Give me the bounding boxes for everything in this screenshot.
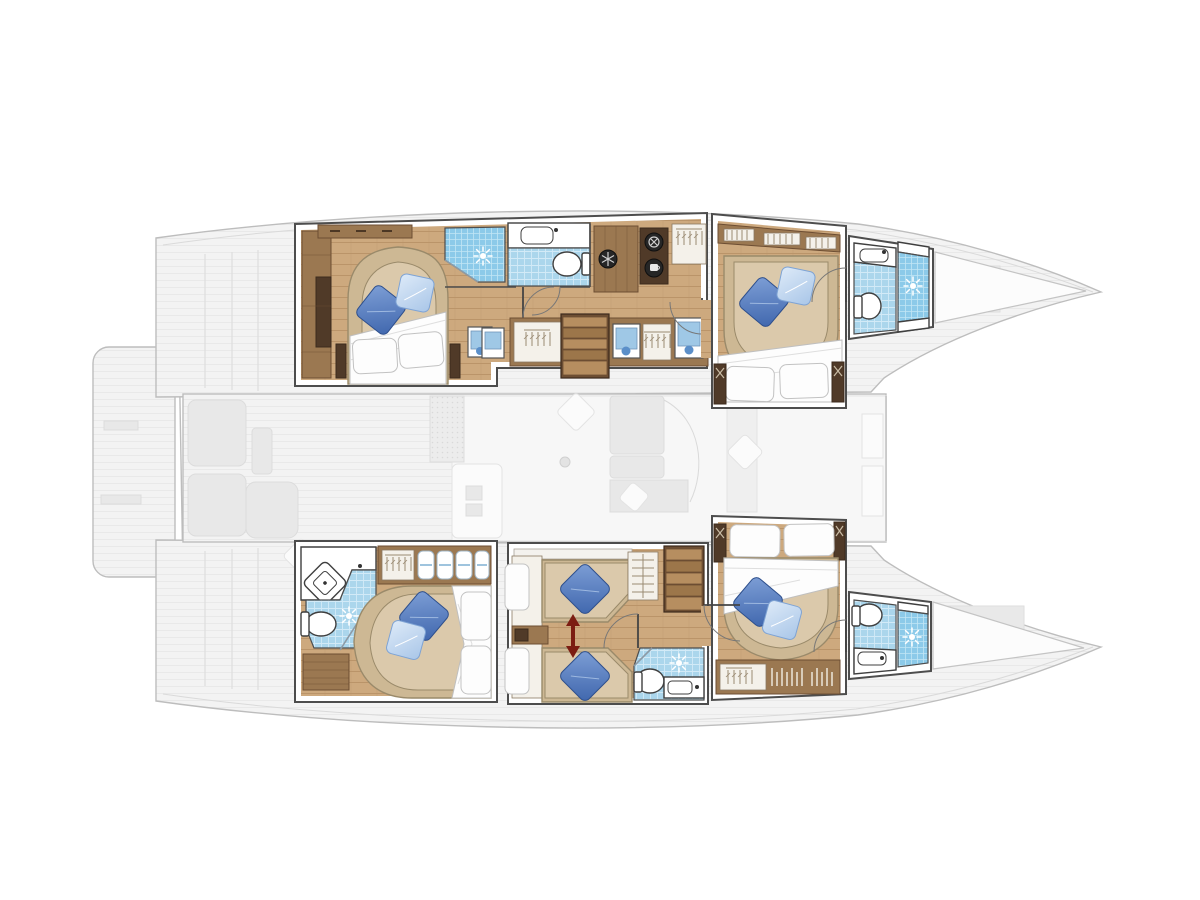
wardrobe [716,660,840,694]
sun-drain-icon [340,607,358,625]
bed-pillow [398,331,445,369]
vanity-counter [508,223,590,248]
starboard-aft-suite [295,213,708,386]
companionway-stairs [664,546,704,612]
bed-pillow [505,564,529,610]
port-aft-cabin-bed [354,586,491,698]
slatted-bench [303,654,349,690]
cockpit-bench [188,474,246,536]
bed-pillow [461,592,491,640]
snowflake-icon [599,250,617,268]
starboard-forward-bathroom [849,236,933,339]
washer-icon [645,233,663,251]
speaker-post [832,362,844,402]
port-hull-interior [295,516,931,704]
toilet-tank [634,672,642,692]
bed-pillow [352,338,398,374]
saloon-window [862,414,883,458]
floorplan-stage [0,0,1200,900]
toilet-tank [582,253,590,275]
bed-pillow [505,648,529,694]
toilet-tank [854,296,862,318]
throw-pillow-light [395,273,435,313]
galley-sink [466,486,482,500]
saloon-mat [430,396,464,462]
catamaran-floorplan [0,0,1200,900]
hanger-section [724,229,754,241]
toilet-tank [301,612,309,636]
escape-hatch [613,324,640,358]
toilet [306,612,336,636]
cockpit-lounge [246,482,298,538]
galley-sink [466,504,482,516]
bed-pillow [725,366,774,402]
speaker-post [714,364,726,404]
saloon-sofa [610,456,664,478]
cockpit-bench [188,400,246,466]
bed-pillow [730,525,781,558]
toilet [553,252,581,276]
hanging-locker [643,324,671,360]
bed-pillow [461,646,491,694]
speaker-post [714,524,726,562]
sun-drain-icon [474,247,492,265]
saloon-sofa [610,396,664,454]
throw-pillow-light [776,266,816,306]
escape-hatch [482,328,504,358]
table-leg [560,457,570,467]
companionway-stairs [561,314,609,378]
hanging-locker [672,224,706,264]
port-aft-wardrobe [378,546,491,584]
bed-pillow [779,363,828,399]
port-twin-cabin [505,543,708,704]
galley-counter [452,464,502,538]
platform-fitting [101,495,141,504]
drawer [515,629,528,641]
port-forward-bathroom [849,592,931,679]
starboard-forward-cabin [712,214,846,408]
saloon-window [862,466,883,516]
wardrobe-panel [316,277,331,347]
bedside-post [450,344,460,378]
hanger-section [764,233,800,245]
bed-pillow [784,524,835,557]
coffee-machine-icon [645,259,663,277]
toilet-tank [852,606,860,626]
sun-drain-icon [904,277,922,295]
cockpit-table [252,428,272,474]
port-aft-suite [295,541,497,702]
speaker-post [834,522,845,560]
platform-fitting [104,421,138,430]
sun-drain-icon [903,628,921,646]
port-forward-cabin [704,516,846,700]
bedside-post [336,344,346,378]
sun-drain-icon [670,654,688,672]
